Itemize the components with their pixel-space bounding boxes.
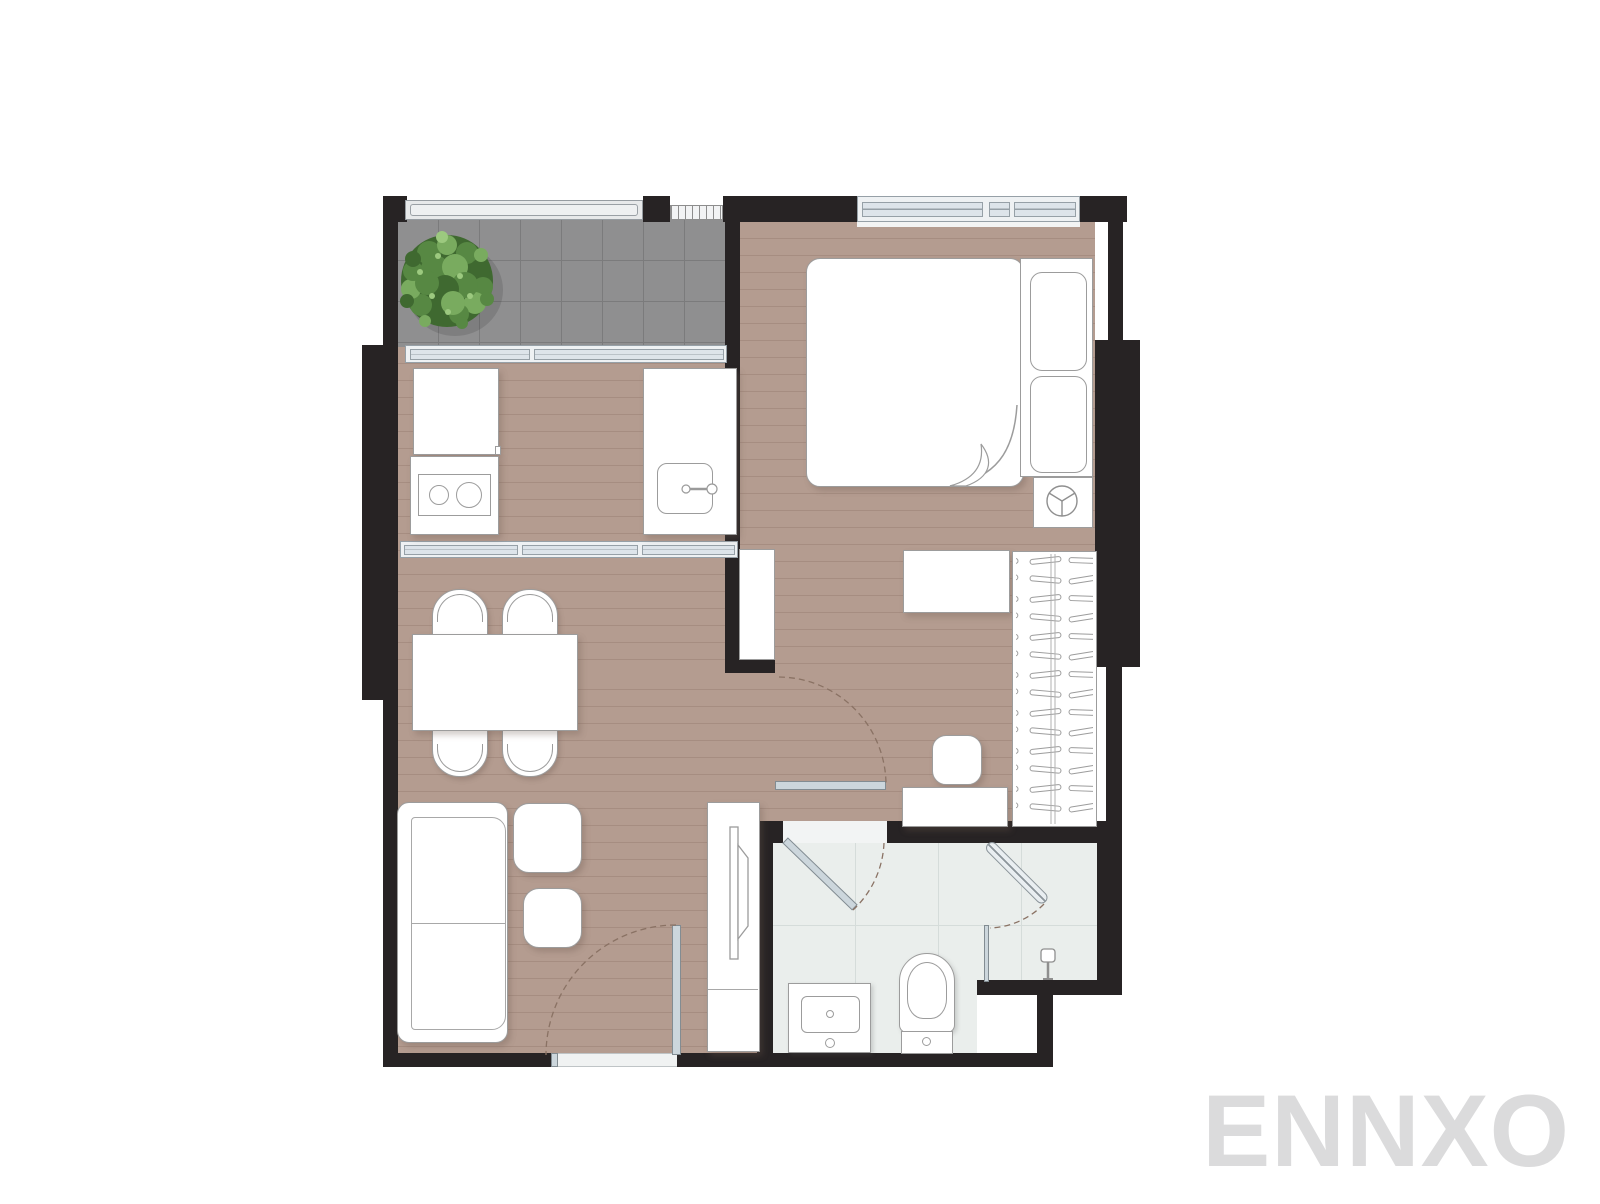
toilet-flush-button [922, 1037, 931, 1046]
watermark: ENNXO [1202, 1080, 1570, 1182]
side-table-icon [513, 803, 582, 873]
bedroom-window-sill [857, 222, 1080, 227]
stove-burner [429, 485, 449, 505]
chair-backrest [437, 594, 483, 622]
pillow-icon [1030, 272, 1087, 371]
wall-bedroom-return [740, 660, 775, 673]
tv-console-divider [708, 989, 758, 990]
pillow-icon [1030, 376, 1087, 473]
bathroom-door-threshold [783, 821, 887, 843]
entry-threshold [558, 1053, 677, 1067]
window-pane [989, 202, 1010, 217]
wall-right-pillar [1095, 340, 1140, 667]
wall-bathroom-right [1097, 821, 1122, 995]
wall-right-upper [1108, 196, 1123, 345]
sofa-icon [397, 802, 508, 1043]
balcony-railing [405, 200, 643, 220]
dresser-icon [902, 787, 1008, 827]
wall-bottom-right [677, 1053, 1053, 1067]
wardrobe-icon [1012, 551, 1097, 827]
mirror-cabinet-icon [739, 549, 775, 660]
kitchen-sink-icon [657, 463, 713, 514]
window-pane [862, 202, 983, 217]
dining-table-icon [412, 634, 578, 731]
chair-backrest [437, 744, 483, 772]
vanity-drain [826, 1010, 834, 1018]
fridge-icon [413, 368, 499, 455]
chair-backrest [507, 744, 553, 772]
bedroom-door-icon [775, 781, 886, 790]
toilet-icon [899, 953, 955, 1054]
wall-shower-bottom [977, 980, 1122, 995]
kitchen-balcony-window [405, 345, 727, 363]
wall-top-pier [643, 196, 670, 222]
window-pane [534, 349, 724, 360]
kitchen-partition-window [400, 541, 738, 558]
wall-bottom-left [383, 1053, 558, 1067]
sofa-seat-divider [411, 923, 506, 924]
entry-door-jamb [551, 1053, 558, 1067]
vanity-knob [825, 1038, 835, 1048]
desk-icon [903, 550, 1010, 613]
chair-backrest [507, 594, 553, 622]
toilet-bowl-inner [907, 962, 947, 1019]
window-pane [1014, 202, 1076, 217]
stool-icon [932, 735, 982, 785]
balcony-floor [398, 220, 727, 347]
shower-glass-icon [984, 925, 989, 982]
wall-top-middle [723, 196, 857, 222]
fridge-handle [495, 446, 501, 455]
wall-top-left-corner [383, 196, 407, 222]
balcony-railing-frame [410, 204, 638, 216]
vanity-sink-icon [788, 983, 871, 1053]
bed-icon [806, 258, 1024, 487]
wall-right-lower [1106, 667, 1122, 823]
entry-door-icon [672, 925, 681, 1055]
window-pane [642, 545, 735, 555]
side-table-icon [523, 888, 582, 948]
tv-console-icon [707, 802, 760, 1052]
bedside-unit [1033, 477, 1093, 528]
stove-burner [456, 482, 482, 508]
window-pane [404, 545, 518, 555]
floor-plan: ENNXO [0, 0, 1600, 1204]
bedroom-window [857, 196, 1080, 222]
wall-bathroom-top-left [757, 821, 783, 843]
wall-left-protrusion [362, 345, 398, 700]
window-pane [410, 349, 530, 360]
window-pane [522, 545, 638, 555]
ac-louver-icon [670, 205, 723, 220]
